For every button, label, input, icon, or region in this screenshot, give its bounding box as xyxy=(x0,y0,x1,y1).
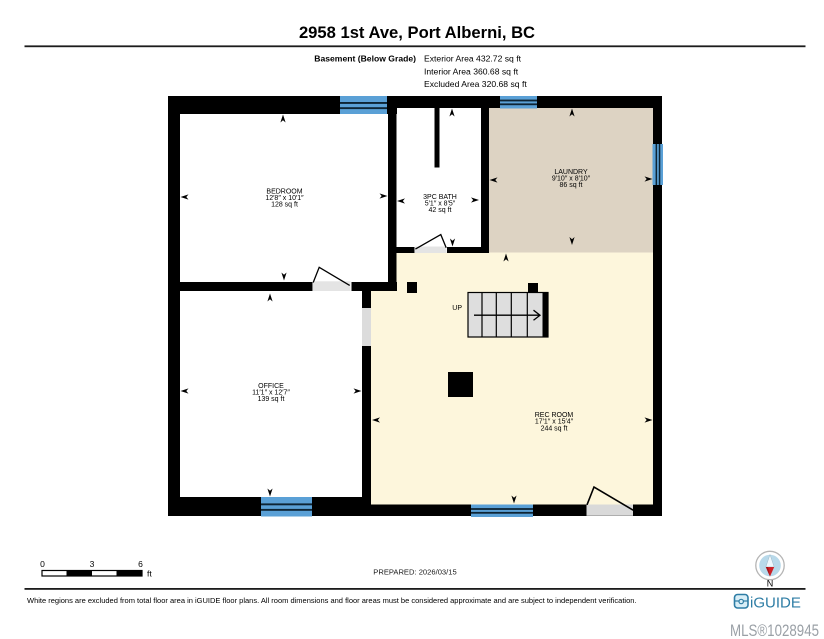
svg-text:White regions are excluded fro: White regions are excluded from total fl… xyxy=(27,596,637,605)
svg-text:42 sq ft: 42 sq ft xyxy=(429,207,452,214)
svg-text:139 sq ft: 139 sq ft xyxy=(258,396,285,403)
svg-text:Exterior Area 432.72 sq ft: Exterior Area 432.72 sq ft xyxy=(424,54,522,64)
svg-text:Excluded Area 320.68 sq ft: Excluded Area 320.68 sq ft xyxy=(424,79,527,89)
svg-text:17′1″ x 15′4″: 17′1″ x 15′4″ xyxy=(535,419,574,426)
svg-text:6: 6 xyxy=(138,559,143,569)
svg-text:3: 3 xyxy=(90,559,95,569)
svg-text:Interior Area 360.68 sq ft: Interior Area 360.68 sq ft xyxy=(424,66,519,76)
svg-text:MLS®1028945: MLS®1028945 xyxy=(730,621,819,639)
svg-text:86 sq ft: 86 sq ft xyxy=(560,182,583,189)
svg-text:Basement (Below Grade): Basement (Below Grade) xyxy=(314,54,416,64)
svg-text:2958 1st Ave, Port Alberni, BC: 2958 1st Ave, Port Alberni, BC xyxy=(299,23,535,42)
svg-text:0: 0 xyxy=(40,559,45,569)
svg-text:iGUIDE: iGUIDE xyxy=(750,595,801,612)
svg-text:128 sq ft: 128 sq ft xyxy=(271,202,298,209)
svg-text:ft: ft xyxy=(147,569,152,579)
svg-text:N: N xyxy=(767,579,774,589)
svg-text:UP: UP xyxy=(452,305,462,312)
svg-text:244 sq ft: 244 sq ft xyxy=(541,426,568,433)
svg-text:PREPARED: 2026/03/15: PREPARED: 2026/03/15 xyxy=(373,568,456,577)
